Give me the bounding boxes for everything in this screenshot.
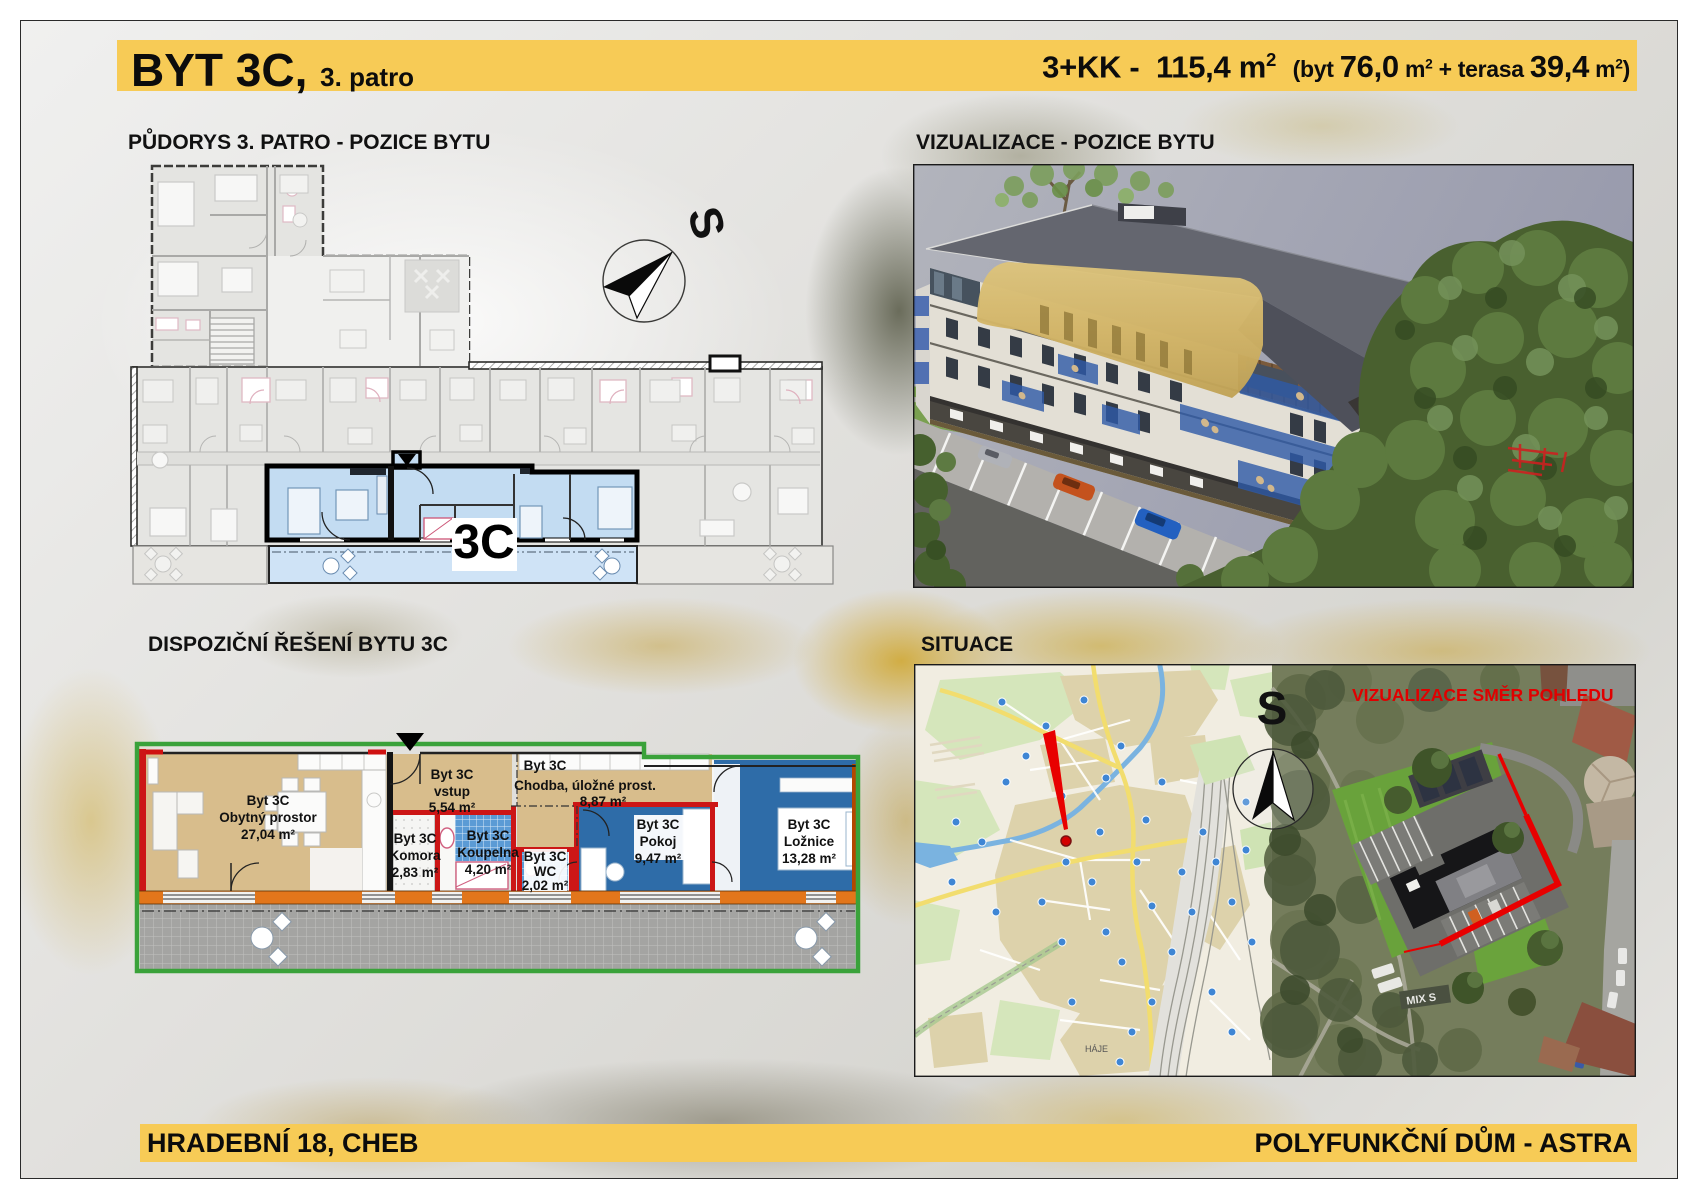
svg-text:Byt 3C: Byt 3C (788, 817, 831, 832)
svg-text:9,47 m²: 9,47 m² (635, 851, 682, 866)
svg-text:4,20 m²: 4,20 m² (465, 862, 512, 877)
svg-text:Byt 3C: Byt 3C (467, 828, 510, 843)
svg-text:Chodba, úložné prost.: Chodba, úložné prost. (514, 778, 656, 793)
svg-text:Byt 3C: Byt 3C (247, 793, 290, 808)
svg-text:Byt 3C: Byt 3C (431, 767, 474, 782)
svg-text:WC: WC (534, 864, 557, 879)
svg-text:HÁJE: HÁJE (1085, 1044, 1108, 1054)
svg-text:S: S (678, 201, 736, 244)
svg-text:Pokoj: Pokoj (640, 834, 677, 849)
svg-text:Ložnice: Ložnice (784, 834, 835, 849)
svg-text:8,87 m²: 8,87 m² (580, 794, 627, 809)
svg-text:2,83 m²: 2,83 m² (392, 865, 439, 880)
svg-text:3C: 3C (453, 516, 514, 569)
svg-text:13,28 m²: 13,28 m² (782, 851, 837, 866)
svg-text:Byt 3C: Byt 3C (637, 817, 680, 832)
svg-text:Byt 3C: Byt 3C (524, 849, 567, 864)
svg-text:Obytný prostor: Obytný prostor (219, 810, 317, 825)
svg-text:27,04 m²: 27,04 m² (241, 827, 296, 842)
svg-text:Byt 3C: Byt 3C (524, 758, 567, 773)
svg-text:Komora: Komora (389, 848, 440, 863)
svg-text:vstup: vstup (434, 784, 470, 799)
svg-text:Koupelna: Koupelna (457, 845, 519, 860)
svg-text:5,54 m²: 5,54 m² (429, 800, 476, 815)
svg-text:Byt 3C: Byt 3C (394, 831, 437, 846)
svg-text:VIZUALIZACE SMĚR POHLEDU: VIZUALIZACE SMĚR POHLEDU (1352, 684, 1614, 705)
svg-text:S: S (1257, 682, 1288, 734)
svg-text:2,02 m²: 2,02 m² (522, 878, 569, 893)
